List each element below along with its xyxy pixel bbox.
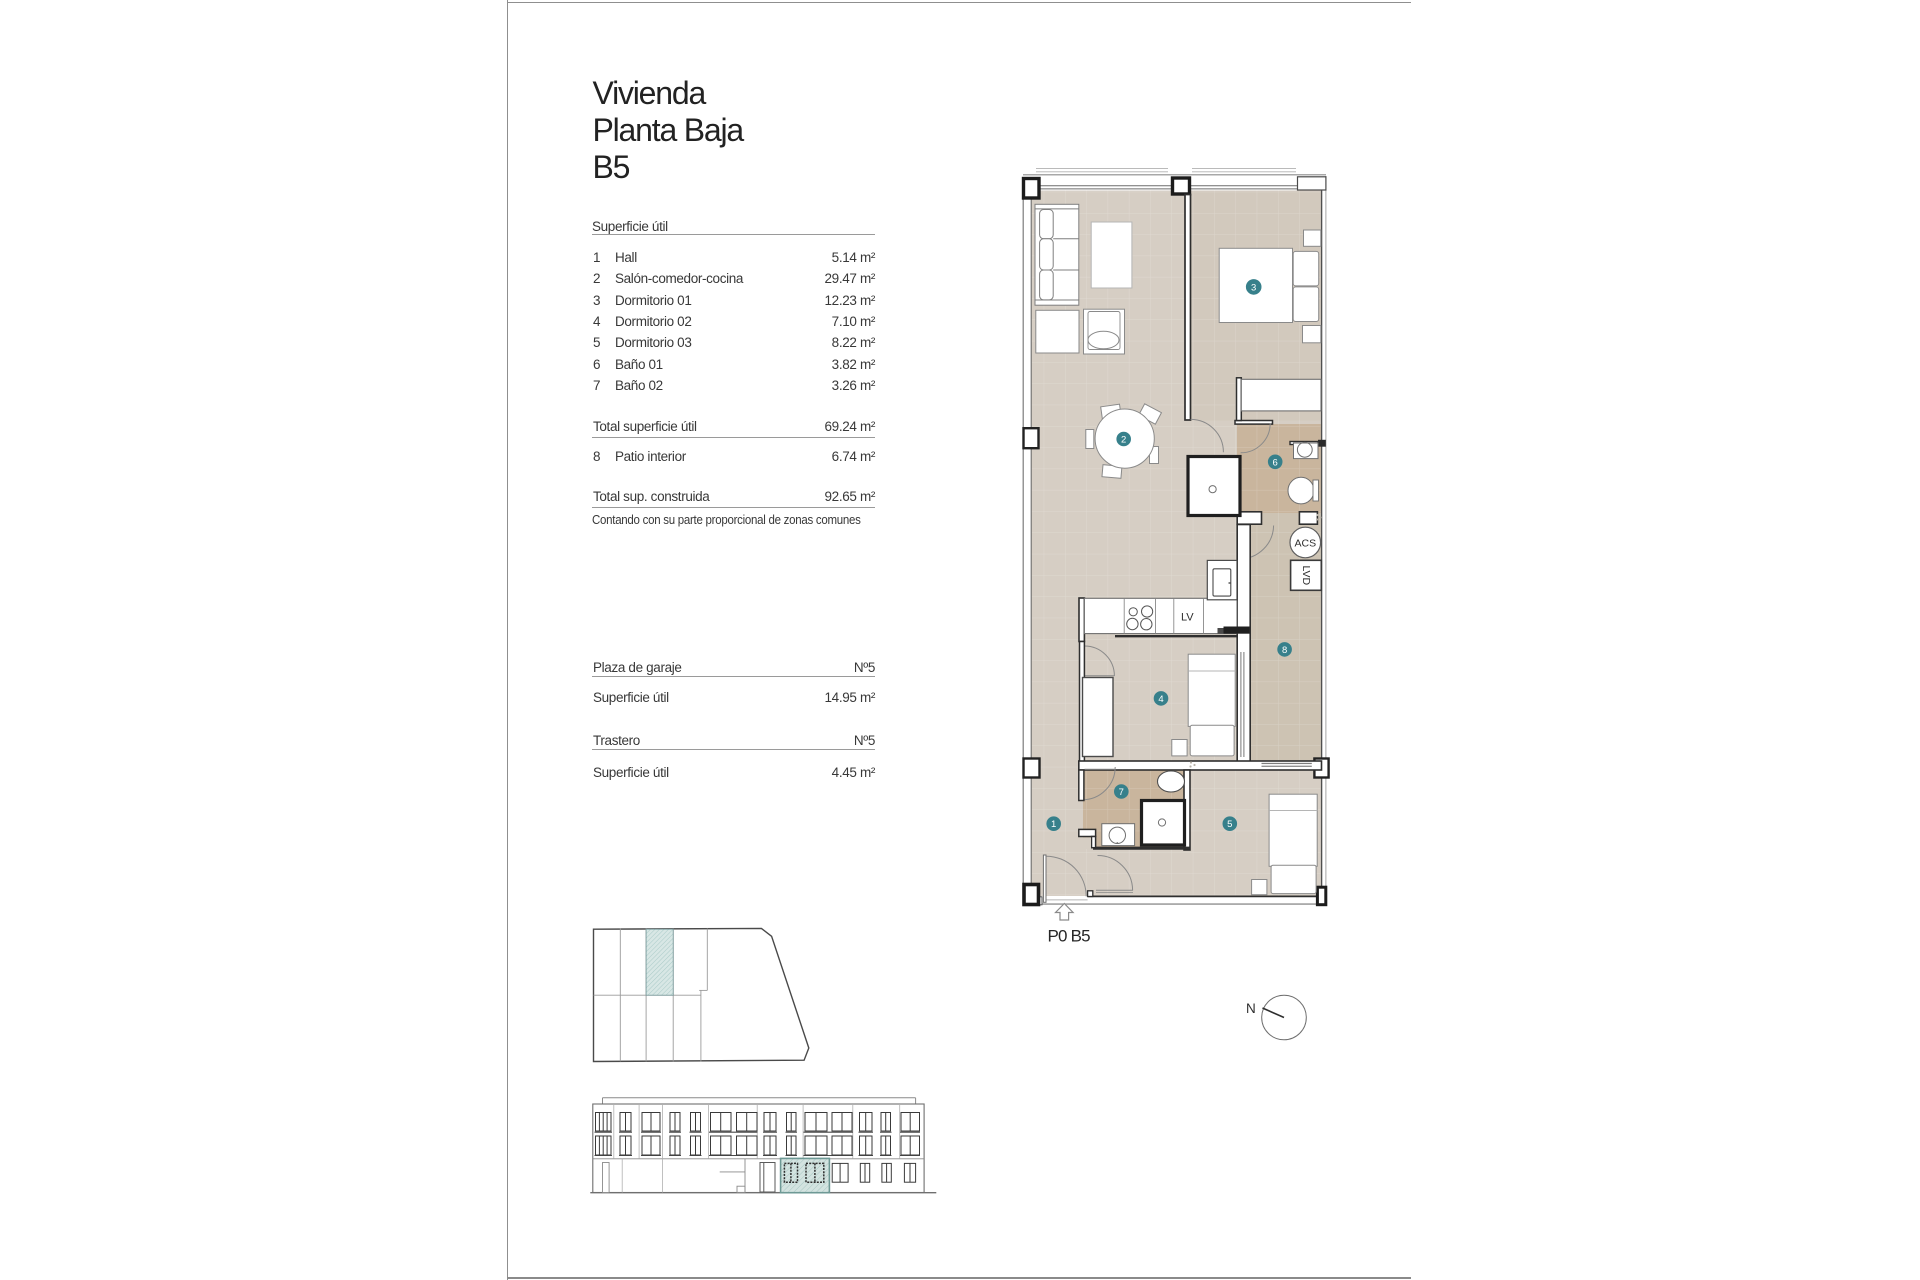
svg-text:5: 5 bbox=[1227, 819, 1232, 830]
svg-text:1: 1 bbox=[1051, 819, 1056, 830]
svg-text:8: 8 bbox=[1282, 645, 1287, 656]
svg-text:LV: LV bbox=[1181, 612, 1194, 624]
svg-text:6: 6 bbox=[1273, 457, 1278, 468]
svg-text:LVD: LVD bbox=[1300, 565, 1312, 585]
svg-text:2: 2 bbox=[1121, 435, 1126, 446]
svg-text:ACS: ACS bbox=[1295, 538, 1317, 550]
svg-text:7: 7 bbox=[1119, 787, 1124, 798]
svg-text:3: 3 bbox=[1251, 283, 1256, 294]
svg-text:4: 4 bbox=[1158, 694, 1163, 705]
svg-text:N: N bbox=[1246, 1001, 1256, 1016]
svg-text:P0 B5: P0 B5 bbox=[1048, 927, 1091, 946]
